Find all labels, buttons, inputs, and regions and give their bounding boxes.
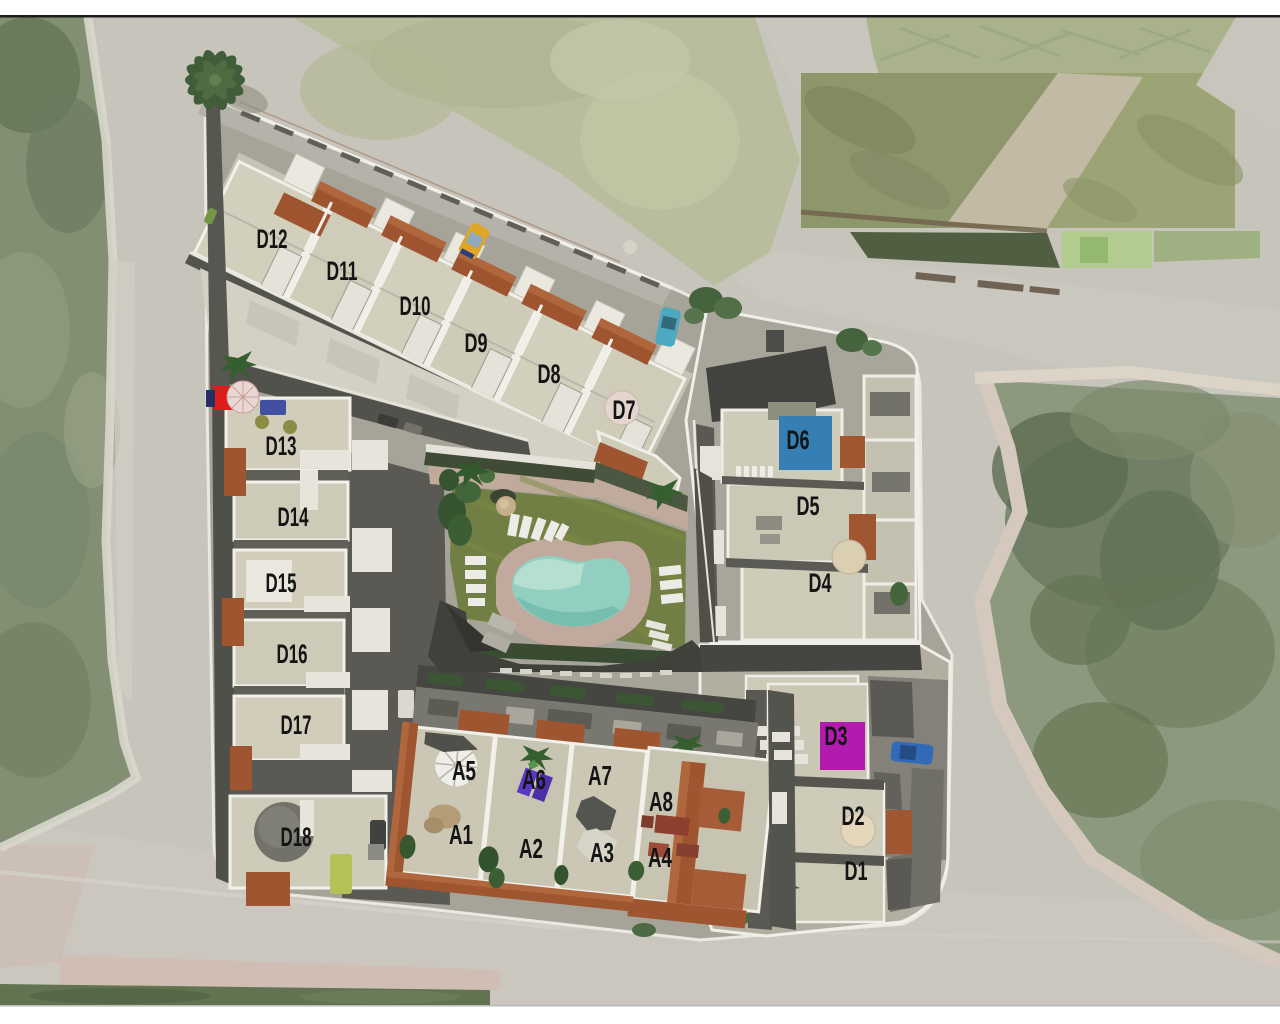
svg-text:D10: D10	[400, 291, 431, 321]
svg-text:A2: A2	[519, 833, 543, 864]
svg-text:D1: D1	[845, 856, 868, 886]
svg-text:D16: D16	[277, 639, 308, 669]
svg-text:D11: D11	[327, 256, 358, 286]
svg-text:D4: D4	[809, 568, 832, 598]
svg-text:A1: A1	[449, 819, 473, 850]
svg-text:A6: A6	[522, 764, 546, 795]
svg-text:D14: D14	[278, 502, 309, 532]
svg-text:D7: D7	[613, 395, 636, 425]
svg-text:A8: A8	[649, 786, 673, 817]
svg-text:D13: D13	[266, 431, 297, 461]
svg-text:A5: A5	[452, 755, 476, 786]
svg-text:D15: D15	[266, 568, 297, 598]
svg-text:D8: D8	[538, 359, 561, 389]
svg-text:A7: A7	[588, 760, 612, 791]
svg-text:D18: D18	[281, 822, 312, 852]
svg-text:A4: A4	[648, 842, 672, 873]
svg-text:D2: D2	[842, 801, 865, 831]
svg-text:D5: D5	[797, 491, 820, 521]
svg-text:D17: D17	[281, 710, 312, 740]
svg-text:D9: D9	[465, 328, 488, 358]
svg-text:D6: D6	[787, 425, 810, 455]
svg-text:D3: D3	[825, 721, 848, 751]
svg-text:A3: A3	[590, 837, 614, 868]
svg-text:D12: D12	[257, 224, 288, 254]
